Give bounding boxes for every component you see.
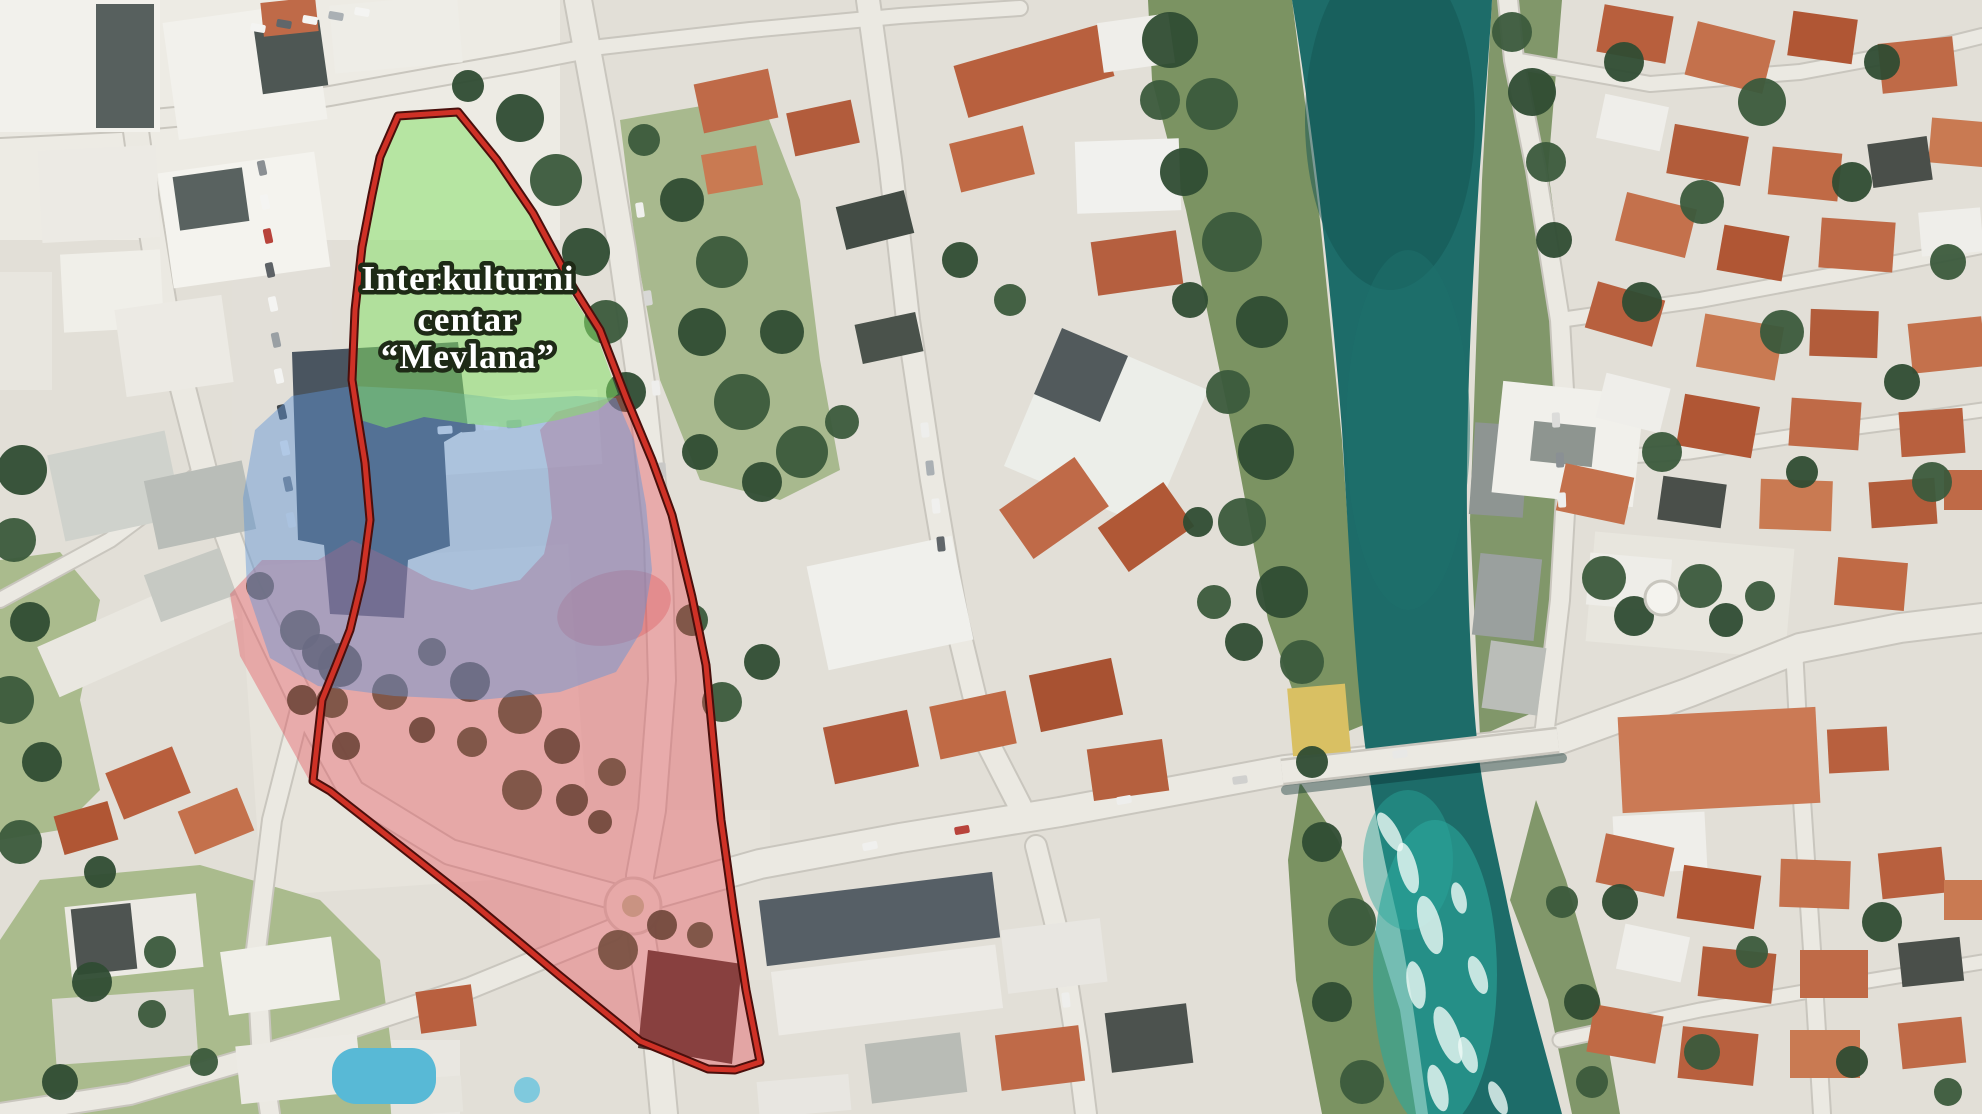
tree	[1197, 585, 1231, 619]
car	[1558, 492, 1567, 507]
tree	[1236, 296, 1288, 348]
building	[1472, 553, 1542, 641]
tree	[10, 602, 50, 642]
building	[1834, 557, 1908, 611]
building	[1878, 847, 1946, 899]
building	[1105, 1003, 1194, 1073]
car	[1556, 452, 1565, 467]
tree	[1296, 746, 1328, 778]
tree	[1912, 462, 1952, 502]
building	[1898, 1017, 1966, 1069]
tree	[1340, 1060, 1384, 1104]
tree	[1206, 370, 1250, 414]
tree	[682, 434, 718, 470]
tree	[1564, 984, 1600, 1020]
tree	[1862, 902, 1902, 942]
tree	[22, 742, 62, 782]
blue-zone	[243, 386, 652, 700]
tree	[1602, 884, 1638, 920]
building	[96, 4, 154, 128]
car	[651, 380, 661, 396]
tree	[0, 820, 42, 864]
tree	[1642, 432, 1682, 472]
tree	[1183, 507, 1213, 537]
building	[865, 1032, 968, 1103]
tree	[144, 936, 176, 968]
building	[52, 989, 198, 1065]
tree	[1225, 623, 1263, 661]
tree	[1678, 564, 1722, 608]
building	[173, 167, 250, 230]
label-line-3: “Mevlana”	[381, 337, 555, 376]
building	[114, 295, 233, 397]
tree	[138, 1000, 166, 1028]
tree	[714, 374, 770, 430]
tree	[1546, 886, 1578, 918]
tree	[1186, 78, 1238, 130]
car	[1552, 412, 1561, 427]
satellite-map: Interkulturni centar “Mevlana”	[0, 0, 1982, 1114]
tree	[1738, 78, 1786, 126]
building	[1818, 217, 1895, 272]
tree	[1930, 244, 1966, 280]
tree	[42, 1064, 78, 1100]
tree	[72, 962, 112, 1002]
tree	[496, 94, 544, 142]
tree	[660, 178, 704, 222]
car	[936, 536, 946, 552]
tree	[825, 405, 859, 439]
tree	[1680, 180, 1724, 224]
car	[1061, 992, 1071, 1008]
tree	[1536, 222, 1572, 258]
tree	[678, 308, 726, 356]
building	[1618, 707, 1821, 813]
building	[1768, 146, 1843, 201]
river-shade	[1346, 250, 1470, 610]
car	[920, 422, 930, 438]
building	[1899, 408, 1966, 457]
tree	[1328, 898, 1376, 946]
tree	[1492, 12, 1532, 52]
tree	[1142, 12, 1198, 68]
building	[1944, 880, 1982, 920]
tree	[1604, 42, 1644, 82]
tree	[1622, 282, 1662, 322]
tree	[1864, 44, 1900, 80]
building	[1787, 11, 1858, 65]
building	[71, 903, 138, 975]
building	[1677, 865, 1762, 929]
dome-structure	[1645, 581, 1679, 615]
pool	[514, 1077, 540, 1103]
tree	[190, 1048, 218, 1076]
building	[1000, 918, 1107, 994]
building	[1657, 476, 1727, 528]
tree	[1709, 603, 1743, 637]
tree	[1736, 936, 1768, 968]
tree	[1832, 162, 1872, 202]
tree	[994, 284, 1026, 316]
building	[1809, 309, 1879, 358]
building	[0, 272, 52, 390]
tree	[84, 856, 116, 888]
tree	[1160, 148, 1208, 196]
pool	[332, 1048, 436, 1104]
tree	[1836, 1046, 1868, 1078]
tree	[1172, 282, 1208, 318]
building	[1827, 726, 1889, 773]
tree	[1312, 982, 1352, 1022]
tree	[1576, 1066, 1608, 1098]
tree	[452, 70, 484, 102]
tree	[1745, 581, 1775, 611]
tree	[1884, 364, 1920, 400]
building	[1908, 316, 1982, 373]
building	[1788, 398, 1861, 451]
building	[995, 1025, 1085, 1091]
building	[415, 984, 476, 1033]
label-line-2: centar	[417, 300, 518, 339]
tree	[1238, 424, 1294, 480]
tree	[1934, 1078, 1962, 1106]
tree	[1280, 640, 1324, 684]
building	[1867, 136, 1933, 188]
building	[1779, 859, 1851, 909]
building	[1898, 937, 1964, 987]
tree	[1582, 556, 1626, 600]
tree	[1302, 822, 1342, 862]
label-line-1: Interkulturni	[361, 259, 574, 298]
tree	[696, 236, 748, 288]
building	[1087, 739, 1169, 801]
car	[931, 498, 941, 514]
tree	[1256, 566, 1308, 618]
screenshot-root: Interkulturni centar “Mevlana”	[0, 0, 1982, 1114]
tree	[760, 310, 804, 354]
tree	[744, 644, 780, 680]
tree	[776, 426, 828, 478]
tree	[1684, 1034, 1720, 1070]
tree	[628, 124, 660, 156]
tree	[1202, 212, 1262, 272]
tree	[1760, 310, 1804, 354]
car	[925, 460, 935, 476]
tree	[1218, 498, 1266, 546]
tree	[1140, 80, 1180, 120]
tree	[1508, 68, 1556, 116]
tree	[1786, 456, 1818, 488]
building	[1800, 950, 1868, 998]
building	[38, 145, 161, 243]
building	[329, 0, 462, 73]
tree	[530, 154, 582, 206]
tree	[1526, 142, 1566, 182]
building	[1287, 684, 1351, 757]
tree	[942, 242, 978, 278]
building	[1928, 117, 1982, 167]
tree	[742, 462, 782, 502]
building	[1482, 640, 1547, 715]
